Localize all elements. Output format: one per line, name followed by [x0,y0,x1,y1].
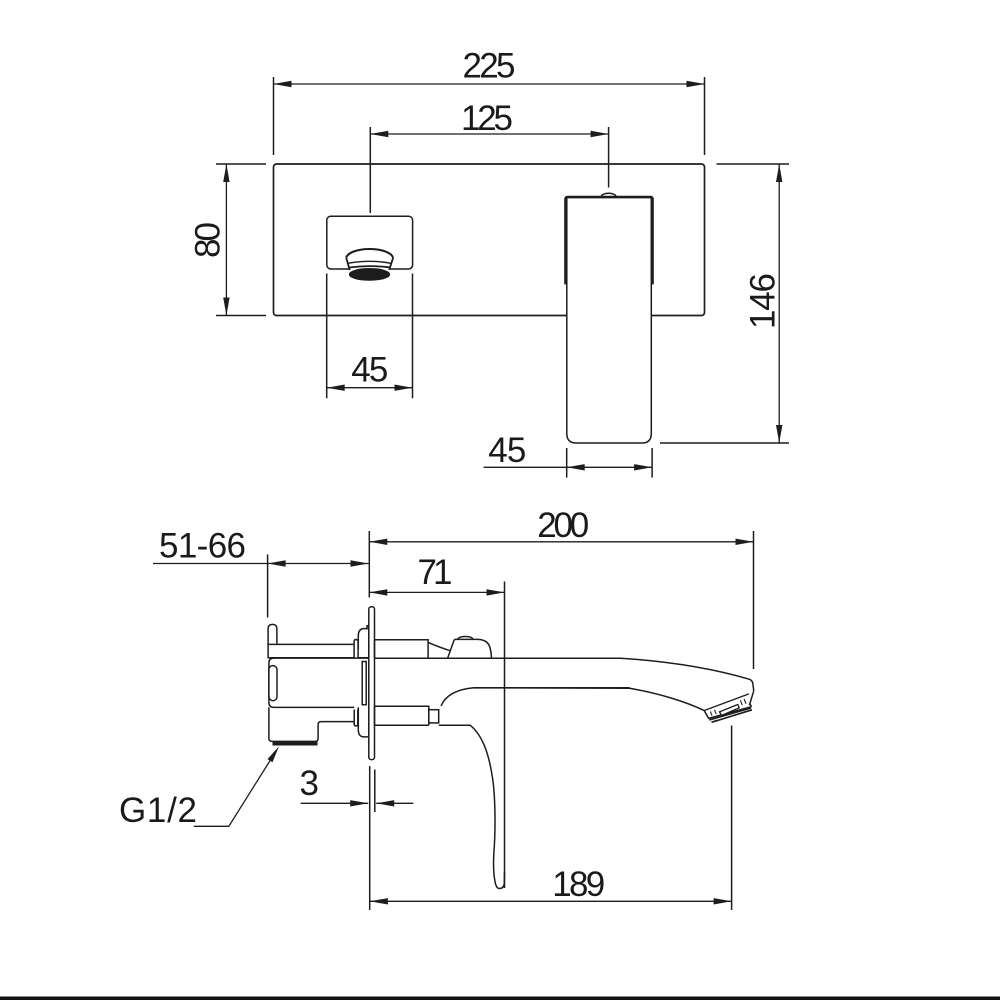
svg-text:51-66: 51-66 [159,527,246,566]
svg-text:3: 3 [299,764,318,803]
svg-text:80: 80 [188,222,227,258]
svg-text:146: 146 [743,273,782,329]
svg-text:200: 200 [537,506,589,545]
svg-text:225: 225 [463,47,516,86]
svg-text:189: 189 [552,865,605,904]
svg-text:71: 71 [418,553,453,592]
svg-text:45: 45 [351,351,388,390]
svg-text:G1/2: G1/2 [119,791,197,830]
svg-text:125: 125 [461,99,513,138]
svg-text:45: 45 [488,431,526,470]
